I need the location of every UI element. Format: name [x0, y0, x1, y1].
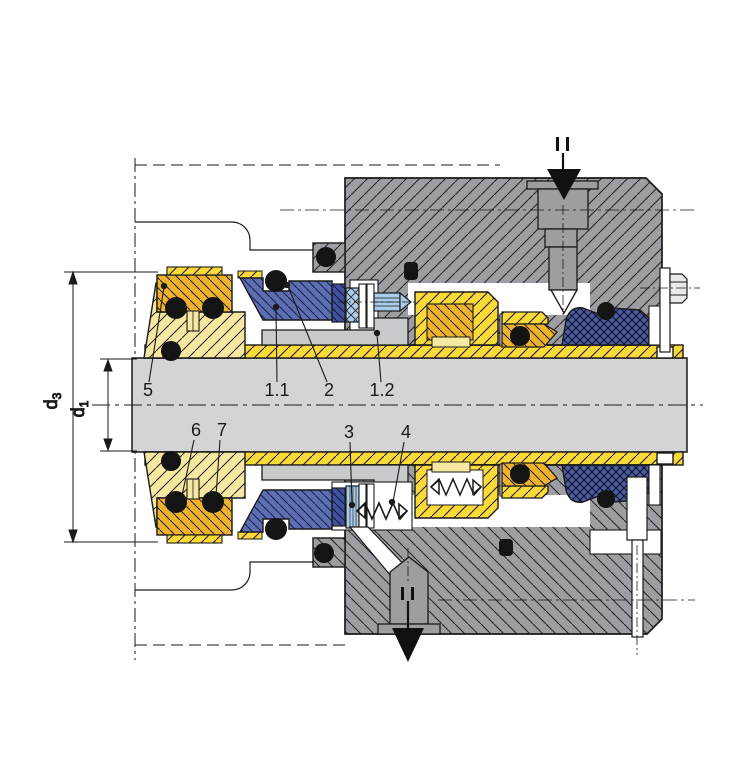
- o-ring: [165, 297, 187, 319]
- part-label-4: 4: [401, 422, 411, 442]
- seal-drawing-page: d3 d1 5 1.1 2 1.2 6 7 3 4: [0, 0, 731, 768]
- thrust-ring-top: [346, 288, 359, 322]
- o-ring: [404, 262, 418, 280]
- seal-cross-section-drawing: d3 d1 5 1.1 2 1.2 6 7 3 4: [0, 0, 731, 768]
- port-tick-icon: [411, 587, 414, 600]
- setting-plate-bottom: [627, 477, 647, 540]
- o-ring: [316, 247, 336, 267]
- part-label-2: 2: [324, 380, 334, 400]
- hex-bolt: [670, 274, 687, 303]
- o-ring-7: [202, 491, 224, 513]
- washer: [359, 284, 366, 328]
- drive-pin: [187, 311, 199, 331]
- o-ring: [597, 490, 615, 508]
- part-label-7: 7: [217, 420, 227, 440]
- o-ring-2: [265, 270, 287, 292]
- o-ring-6: [165, 491, 187, 513]
- part-label-3: 3: [344, 422, 354, 442]
- o-ring: [265, 518, 287, 540]
- drive-pin: [187, 479, 199, 499]
- o-ring: [510, 464, 530, 484]
- plate-slot: [590, 530, 661, 554]
- collar-ring: [649, 306, 660, 345]
- o-ring: [161, 451, 181, 471]
- part-label-5: 5: [143, 380, 153, 400]
- port-tick-icon: [566, 137, 569, 151]
- face-holder-edge: [332, 284, 345, 322]
- o-ring: [161, 341, 181, 361]
- o-ring: [202, 297, 224, 319]
- part-label-1-1: 1.1: [264, 380, 289, 400]
- setting-plate-top: [660, 268, 670, 352]
- o-ring: [314, 543, 334, 563]
- seat-cap: [167, 267, 222, 275]
- sleeve-step-bottom: [657, 453, 673, 464]
- o-ring: [510, 326, 530, 346]
- port-tick-icon: [401, 587, 404, 600]
- o-ring: [499, 539, 513, 556]
- part-label-1-2: 1.2: [369, 380, 394, 400]
- washer: [367, 284, 374, 328]
- port-tick-icon: [556, 137, 559, 151]
- o-ring: [597, 302, 615, 320]
- part-label-6: 6: [191, 420, 201, 440]
- washer: [367, 484, 374, 528]
- collar-ring: [649, 465, 660, 505]
